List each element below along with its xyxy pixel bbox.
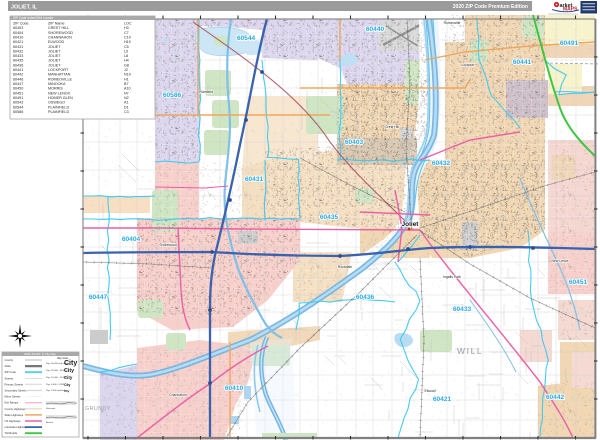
svg-text:MINOOKA: MINOOKA [48,82,66,86]
svg-text:60431: 60431 [13,45,23,49]
svg-text:C10: C10 [124,36,131,40]
svg-text:J2: J2 [124,68,128,72]
svg-text:LOCKPORT: LOCKPORT [48,68,69,72]
svg-text:H1: H1 [124,77,129,81]
svg-text:60446: 60446 [13,77,23,81]
svg-text:H10: H10 [124,40,131,44]
svg-text:City: City [64,375,73,380]
svg-text:ZIP Code: ZIP Code [13,22,29,26]
svg-text:60586: 60586 [163,92,182,99]
svg-text:60442: 60442 [546,394,565,401]
svg-text:60403: 60403 [13,26,23,30]
svg-text:60447: 60447 [89,294,108,301]
svg-text:60410: 60410 [13,36,23,40]
svg-text:60442: 60442 [13,73,23,77]
svg-text:Minor Streets: Minor Streets [5,395,22,399]
svg-text:60440: 60440 [366,26,385,33]
svg-text:60544: 60544 [13,105,23,109]
svg-text:ZIP Code Index/Grid Locator: ZIP Code Index/Grid Locator [13,16,54,20]
svg-text:D1: D1 [124,105,129,109]
svg-text:US Highways: US Highways [5,419,22,423]
svg-text:60421: 60421 [13,40,23,44]
svg-text:Lockport: Lockport [461,63,474,67]
svg-text:CREST HILL: CREST HILL [48,26,69,30]
svg-text:60403: 60403 [345,139,364,146]
svg-text:60491: 60491 [13,96,23,100]
svg-text:60544: 60544 [237,35,256,42]
svg-text:60451: 60451 [569,279,588,286]
svg-text:60432: 60432 [13,49,23,53]
svg-text:H4: H4 [124,59,129,63]
svg-text:60436: 60436 [13,63,23,67]
svg-text:Ingalls Park: Ingalls Park [443,275,461,279]
svg-text:LOC: LOC [124,22,132,26]
svg-text:HOMER GLEN: HOMER GLEN [48,96,73,100]
svg-text:MANHATTAN: MANHATTAN [48,73,71,77]
svg-text:WILL: WILL [457,346,483,356]
svg-text:CHANNAHON: CHANNAHON [48,36,72,40]
svg-text:60586: 60586 [13,110,23,114]
svg-text:County: County [5,358,14,362]
svg-text:County Highways: County Highways [5,407,27,411]
svg-text:60441: 60441 [13,68,23,72]
svg-text:State Highways: State Highways [5,413,24,417]
svg-text:N10: N10 [124,73,131,77]
svg-text:JOLIET: JOLIET [48,45,61,49]
svg-text:City: City [64,383,71,387]
svg-text:JOLIET: JOLIET [48,49,61,53]
svg-text:OSWEGO: OSWEGO [48,101,65,105]
svg-text:Amtrak: Amtrak [46,421,54,424]
svg-text:C5: C5 [124,45,129,49]
svg-text:G8: G8 [124,63,129,67]
svg-text:60451: 60451 [13,91,23,95]
svg-text:60421: 60421 [433,396,452,403]
svg-text:60433: 60433 [13,54,23,58]
svg-text:PLAINFIELD: PLAINFIELD [48,105,69,109]
svg-text:60450: 60450 [13,87,23,91]
svg-text:ELWOOD: ELWOOD [48,40,64,44]
svg-text:A10: A10 [124,87,131,91]
svg-text:Joliet: Joliet [402,221,420,228]
svg-text:60404: 60404 [13,31,23,35]
svg-text:60432: 60432 [432,160,451,167]
svg-text:Shorewood: Shorewood [159,243,176,247]
svg-text:Pop: 5,000 - 9,999: Pop: 5,000 - 9,999 [46,384,65,386]
svg-text:60433: 60433 [453,306,472,313]
svg-text:SHOREWOOD: SHOREWOOD [48,31,73,35]
svg-text:City: City [64,389,70,393]
svg-text:N2: N2 [124,96,129,100]
svg-text:City: City [64,360,77,367]
svg-text:JOLIET, IL: JOLIET, IL [11,4,38,10]
svg-text:60441: 60441 [513,59,532,66]
svg-text:PLAINFIELD: PLAINFIELD [48,110,69,114]
svg-text:60436: 60436 [356,294,375,301]
svg-text:H3: H3 [124,26,129,30]
svg-text:JOLIET: JOLIET [48,54,61,58]
svg-text:60543: 60543 [13,101,23,105]
svg-text:State: State [5,364,12,368]
svg-text:60435: 60435 [320,214,339,221]
svg-text:60491: 60491 [560,40,579,47]
svg-text:ZIP Name: ZIP Name [48,22,65,26]
svg-text:N7: N7 [124,91,129,95]
svg-text:Romeoville: Romeoville [444,21,461,25]
svg-text:Streets: Streets [5,376,14,380]
svg-text:Secondary Streets: Secondary Streets [5,389,28,393]
svg-text:L5: L5 [124,49,128,53]
svg-text:MORRIS: MORRIS [48,87,63,91]
svg-text:A1: A1 [124,101,129,105]
svg-text:JOLIET: JOLIET [48,59,61,63]
svg-text:ROMEOVILLE: ROMEOVILLE [48,77,73,81]
svg-text:L8: L8 [124,54,128,58]
svg-text:C7: C7 [124,31,129,35]
svg-text:GRUNDY: GRUNDY [85,406,111,412]
svg-text:JOLIET: JOLIET [48,63,61,67]
svg-text:Channahon: Channahon [169,393,187,397]
svg-text:Rockdale: Rockdale [338,265,352,269]
svg-text:60435: 60435 [13,59,23,63]
svg-text:2020 ZIP Code Premium Edition: 2020 ZIP Code Premium Edition [453,4,528,10]
svg-text:New Lenox: New Lenox [552,259,569,263]
svg-text:Elwood: Elwood [424,389,435,393]
svg-text:2020 JOLIET, IL City Map: 2020 JOLIET, IL City Map [24,352,56,356]
svg-text:Railroads: Railroads [46,407,56,410]
svg-text:B7: B7 [124,82,129,86]
svg-text:60431: 60431 [245,176,264,183]
svg-text:Primary Streets: Primary Streets [5,382,24,386]
svg-text:Crest Hill: Crest Hill [385,125,399,129]
svg-text:City: City [64,368,74,374]
svg-text:Exit Ramps: Exit Ramps [5,401,19,405]
svg-text:Plainfield: Plainfield [199,90,213,94]
svg-text:Toll Roads: Toll Roads [5,431,18,435]
svg-text:60404: 60404 [122,236,141,243]
svg-text:NEW LENOX: NEW LENOX [48,91,71,95]
svg-text:60447: 60447 [13,82,23,86]
svg-text:C3: C3 [124,110,129,114]
svg-text:ZIP Code: ZIP Code [5,370,17,374]
svg-text:60410: 60410 [225,385,244,392]
